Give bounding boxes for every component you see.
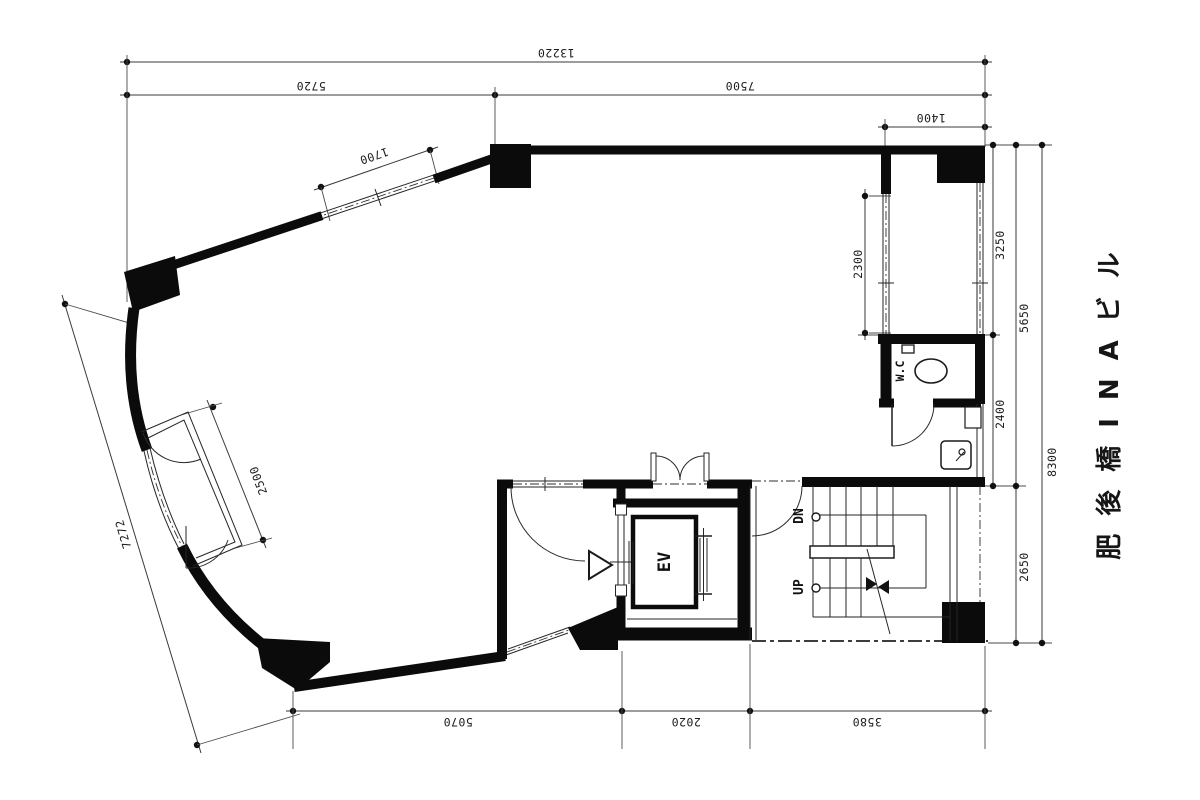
top-right-column (937, 150, 985, 183)
stair-direction-arrow (866, 549, 890, 634)
west-column (124, 256, 180, 312)
hall-north-partition (497, 477, 583, 491)
dim-balcony-window: 2300 (851, 249, 865, 279)
top-left-column (490, 144, 531, 188)
dim-bottom-elevator-span: 2020 (671, 715, 701, 729)
dim-entry-room: 2500 (246, 464, 270, 497)
dim-right-upper-total: 5650 (1017, 303, 1031, 333)
elevator-layer (589, 504, 712, 607)
dim-right-upper: 3250 (993, 230, 1007, 260)
corridor-west-wall (881, 150, 891, 194)
dim-right-lower: 2650 (1017, 552, 1031, 582)
corridor-west-window (878, 194, 894, 334)
core-southwest-column (568, 607, 618, 650)
left-dimension-lines: 7272 2500 (62, 295, 300, 753)
hand-wash-sink (941, 441, 971, 469)
stair-treads-upper (830, 486, 893, 546)
curved-window (144, 448, 184, 549)
shelf-unit (965, 407, 981, 428)
stair-down-label: DN (792, 508, 807, 524)
entry-door-upper (143, 433, 201, 463)
dim-top-right-span: 7500 (725, 79, 755, 93)
bottom-right-column (942, 602, 985, 643)
stair-up-label: UP (792, 579, 807, 595)
double-entrance-door (651, 453, 709, 481)
curved-wall-upper (131, 308, 147, 450)
wc-door (892, 404, 934, 446)
up-start-marker (812, 584, 820, 592)
label-layer: EV W.C DN UP 肥後橋INAビル (655, 234, 1125, 595)
bottom-dimension-lines: 5070 2020 3580 (286, 644, 992, 749)
diagonal-wall-lower (155, 216, 322, 271)
dn-start-marker (812, 513, 820, 521)
floor-plan-drawing: 13220 5720 7500 1400 1700 3250 240 (0, 0, 1200, 800)
dim-overall-height: 8300 (1045, 447, 1059, 477)
elevator-label: EV (655, 552, 675, 572)
hall-door-swing (511, 487, 585, 561)
ev-jamb-upper (616, 504, 627, 515)
dim-bottom-stair-span: 3580 (852, 715, 882, 729)
dim-bottom-left-span: 5070 (443, 715, 473, 729)
stair-center-rail (810, 546, 894, 558)
toilet-label: W.C (893, 361, 907, 382)
dim-top-left-span: 5720 (296, 79, 326, 93)
dim-balcony-depth: 1400 (916, 111, 946, 125)
dim-right-middle: 2400 (993, 399, 1007, 429)
toilet-bowl (915, 359, 947, 383)
floor-plan-sheet: 13220 5720 7500 1400 1700 3250 240 (0, 0, 1200, 800)
ev-jamb-lower (616, 585, 627, 596)
curved-wall-lower (182, 546, 268, 649)
toilet-tank (902, 345, 914, 353)
stair-layer (750, 486, 957, 641)
entrance-direction-marker (589, 551, 612, 579)
wall-layer (124, 144, 988, 690)
balcony-window-dimension: 2300 (851, 189, 891, 340)
slant-window-dimension: 1700 (314, 145, 439, 221)
corridor-east-window (972, 183, 988, 334)
dim-overall-width: 13220 (537, 46, 574, 60)
south-window (506, 627, 570, 655)
building-name: 肥後橋INAビル (1094, 234, 1125, 560)
dim-slant-window: 1700 (358, 145, 391, 168)
